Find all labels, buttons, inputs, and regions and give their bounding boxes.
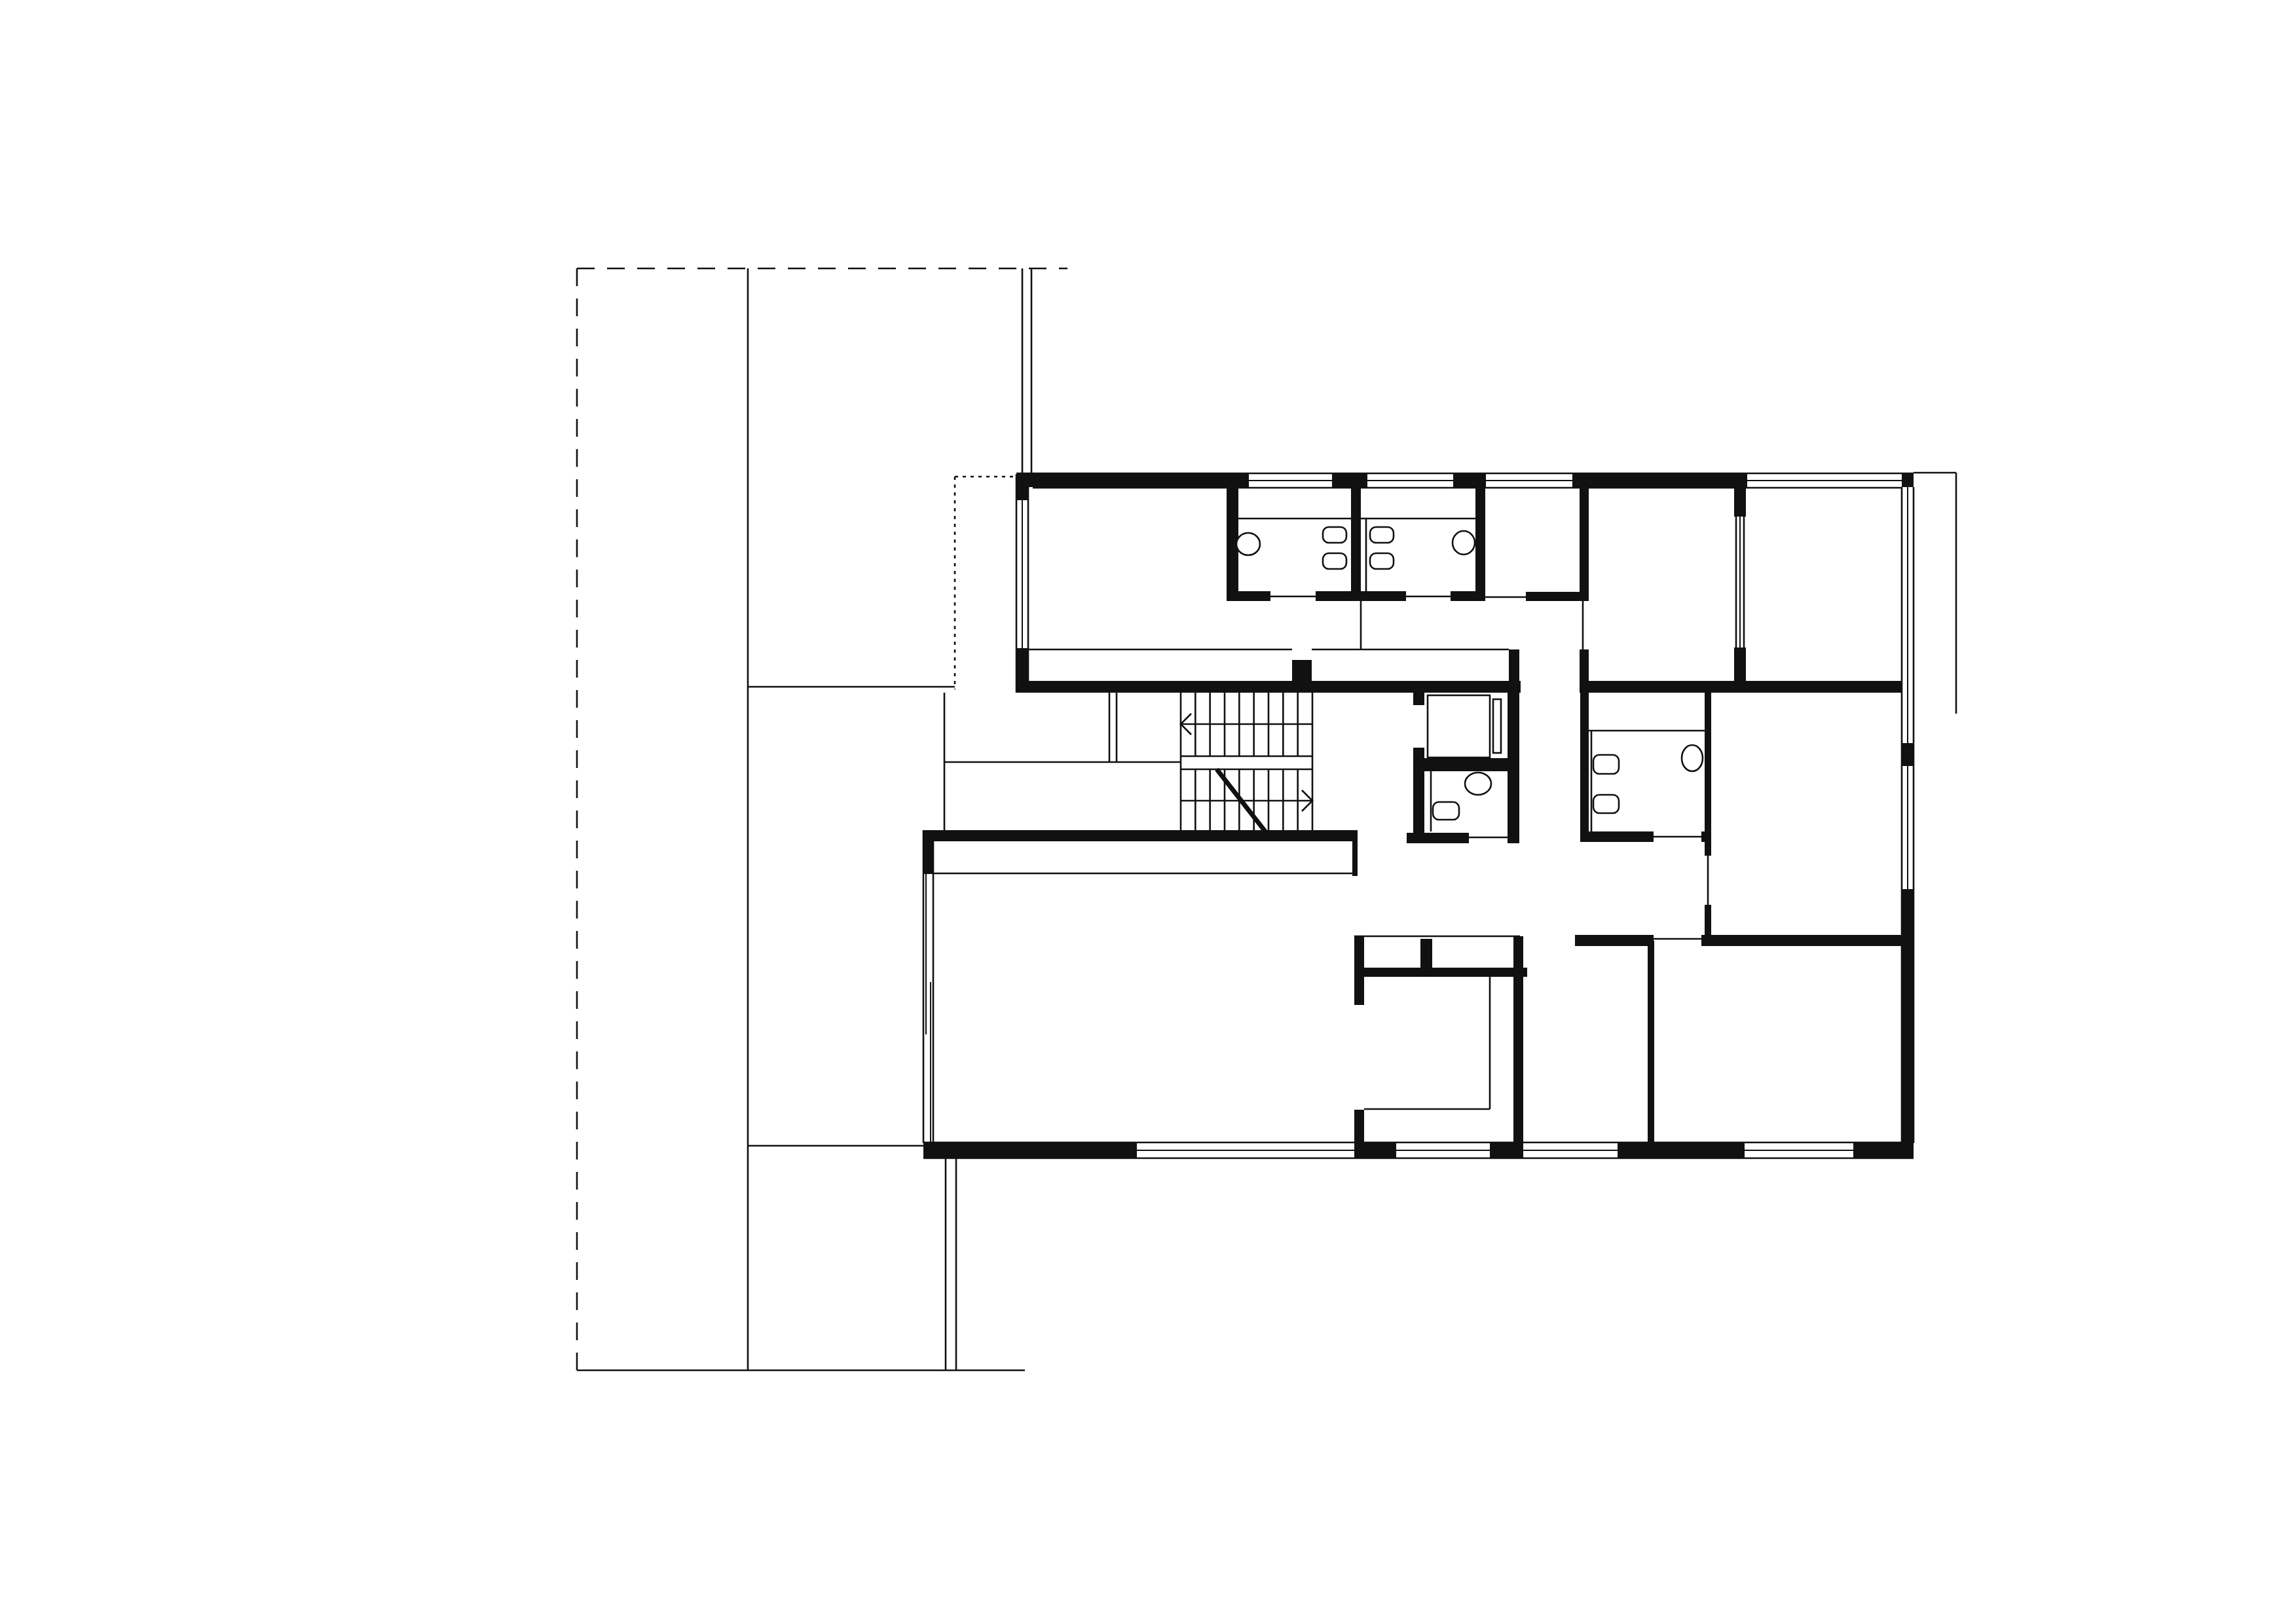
wall-segment (1354, 1143, 1396, 1158)
wall-segment (1902, 889, 1914, 1158)
elevator-counterweight (1493, 699, 1501, 753)
wall-segment (1354, 968, 1527, 977)
canvas-background (0, 0, 2296, 1623)
toilet (1236, 533, 1260, 555)
wall-segment (1734, 487, 1746, 517)
wall-segment (923, 1143, 1137, 1158)
wall-segment (1016, 681, 1521, 693)
wall-segment (1580, 649, 1589, 681)
sink (1370, 527, 1394, 543)
wall-segment (1618, 1143, 1745, 1158)
elevator-car (1428, 695, 1490, 757)
wall-segment (1413, 758, 1519, 771)
wall-segment (923, 841, 933, 874)
sink (1370, 553, 1394, 569)
sink (1323, 553, 1346, 569)
wall-segment (1701, 935, 1902, 946)
wall-segment (1509, 649, 1519, 681)
wall-segment (1407, 833, 1469, 843)
wall-segment (1292, 660, 1312, 682)
wall-segment (1451, 591, 1481, 601)
wall-segment (1227, 591, 1270, 601)
sink (1593, 755, 1619, 774)
wall-segment (1508, 833, 1519, 843)
wall-segment (1332, 474, 1367, 487)
wall-segment (1902, 474, 1914, 487)
wall-segment (1351, 487, 1361, 601)
wall-segment (1902, 743, 1914, 766)
wall-segment (1580, 484, 1589, 601)
wall-segment (1580, 831, 1654, 842)
wall-segment (1648, 941, 1654, 1145)
sink (1433, 802, 1459, 820)
wall-segment (1016, 474, 1028, 500)
wall-segment (1475, 487, 1485, 601)
wall-segment (923, 830, 1356, 841)
wall-segment (1453, 474, 1486, 487)
wall-segment (1853, 1143, 1914, 1158)
wall-segment (1016, 474, 1249, 487)
sink (1323, 527, 1346, 543)
wall-segment (1526, 592, 1586, 601)
wall-segment (1580, 681, 1902, 693)
wall-segment (1705, 692, 1711, 856)
wall-segment (1734, 647, 1746, 681)
wall-segment (1420, 939, 1432, 968)
equipment-outlines (1428, 695, 1501, 757)
wall-segment (1352, 830, 1358, 876)
wall-segment (1490, 1143, 1523, 1158)
wall-segment (1575, 935, 1654, 946)
floor-plan-svg (0, 0, 2296, 1623)
wall-segment (1354, 1110, 1364, 1145)
wall-segment (1316, 591, 1406, 601)
wall-segment (1413, 681, 1424, 705)
wall-segment (1580, 693, 1589, 831)
floor-plan-page (0, 0, 2296, 1623)
sink (1593, 795, 1619, 813)
wall-segment (1572, 474, 1747, 487)
toilet (1465, 773, 1491, 795)
toilet (1682, 745, 1703, 771)
wall-segment (1701, 831, 1711, 842)
toilet (1453, 531, 1475, 555)
wall-segment (1513, 936, 1523, 1145)
